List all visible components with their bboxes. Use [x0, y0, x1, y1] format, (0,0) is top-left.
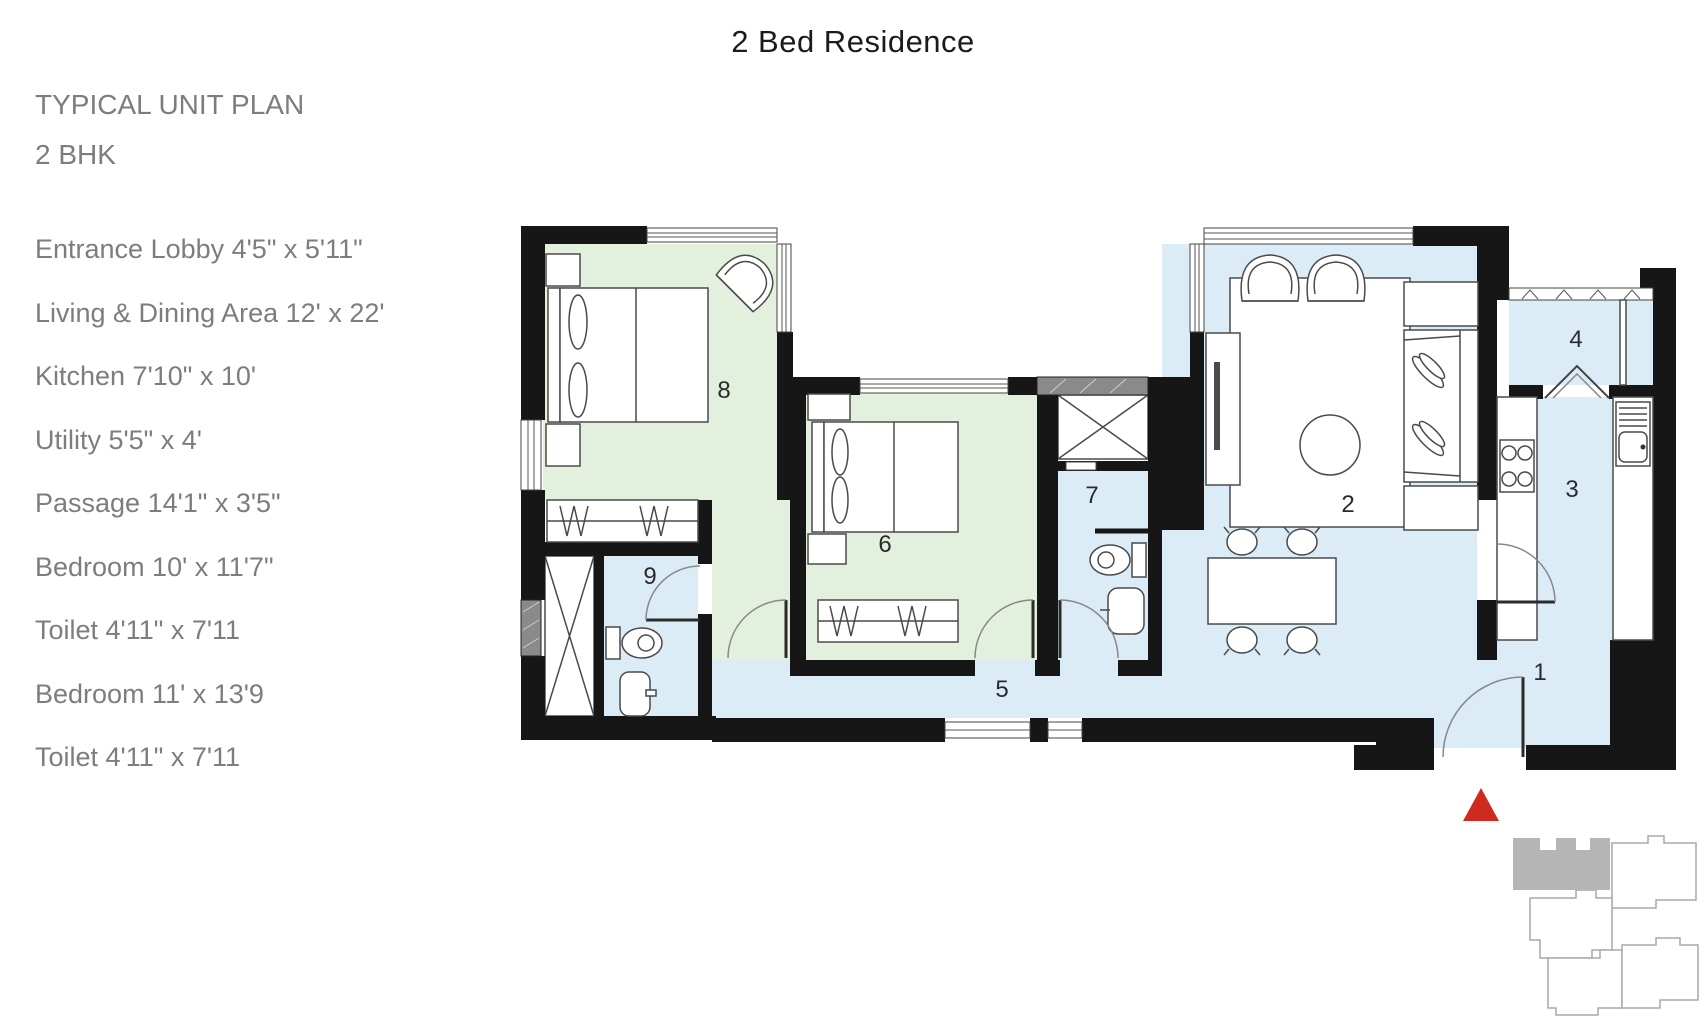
dining-table [1208, 558, 1336, 624]
nightstand [808, 534, 846, 564]
floor-plan-svg: 1 2 3 4 5 6 7 8 9 [0, 0, 1706, 1027]
armchair [1307, 255, 1365, 301]
bedroom2-window [860, 379, 1008, 393]
room-number-entrance: 1 [1533, 659, 1546, 686]
sofa [1404, 330, 1478, 482]
side-table [1404, 486, 1478, 530]
nightstand [546, 424, 580, 466]
side-table [1404, 282, 1478, 326]
passage-window-2 [1048, 722, 1082, 738]
key-plan [1513, 836, 1698, 1015]
room-number-toilet1: 9 [643, 563, 656, 590]
bedroom1-top-window [647, 228, 777, 242]
room-number-bedroom1: 8 [717, 377, 730, 404]
room-number-toilet2: 7 [1085, 482, 1098, 509]
tv-unit [1206, 333, 1240, 485]
double-bed [824, 422, 958, 532]
rug [1230, 278, 1410, 527]
nightstand [546, 254, 580, 286]
wardrobe [818, 600, 958, 642]
wc-bowl [1090, 545, 1130, 575]
wc-tank [1132, 543, 1146, 577]
room-number-kitchen: 3 [1565, 476, 1578, 503]
living-corner-window [1190, 244, 1204, 332]
utility-window [1509, 288, 1653, 300]
wash-basin [1108, 588, 1144, 634]
room-number-living: 2 [1341, 491, 1354, 518]
wc-bowl [622, 628, 662, 658]
bedroom1-side-window [521, 420, 541, 490]
room-number-utility: 4 [1569, 326, 1582, 353]
nightstand [808, 394, 850, 420]
floor-plan-page: { "title": "2 Bed Residence", "heading":… [0, 0, 1706, 1027]
service-shaft-left [545, 556, 594, 716]
bed-headboard [548, 288, 560, 422]
kitchen-sink [1616, 402, 1650, 466]
service-shaft-mid [1058, 395, 1148, 459]
passage-window-1 [945, 722, 1030, 738]
armchair [1241, 255, 1299, 301]
wc-tank [606, 627, 620, 659]
room-number-bedroom2: 6 [878, 531, 891, 558]
shaft-vent-window [1066, 462, 1096, 470]
double-bed [560, 288, 708, 422]
bedroom1-corner-window [777, 244, 791, 332]
living-top-window [1204, 228, 1413, 244]
bedroom2-furniture [808, 394, 958, 642]
bed-headboard [812, 422, 824, 532]
room-number-passage: 5 [995, 676, 1008, 703]
wardrobe [547, 500, 698, 542]
kitchen-counter-left [1497, 397, 1537, 640]
utility-partition [1620, 300, 1626, 385]
entry-marker-triangle [1463, 788, 1499, 821]
key-plan-highlighted-unit [1513, 838, 1610, 890]
hob [1500, 440, 1534, 492]
